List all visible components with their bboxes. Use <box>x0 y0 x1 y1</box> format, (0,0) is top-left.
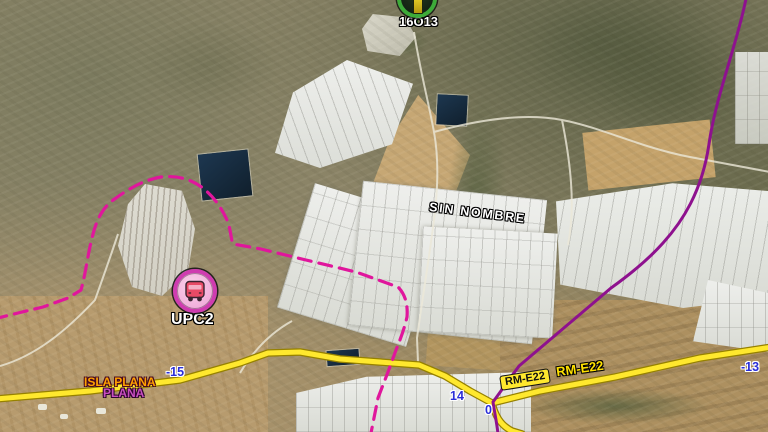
map-canvas[interactable]: 16O13 SIN NOMBRE UPC2 ISLA PLANA PLANA R… <box>0 0 768 432</box>
km-marker--13: -13 <box>741 361 759 374</box>
route-overlay <box>0 0 768 432</box>
stop-emblem-icon <box>413 0 423 14</box>
bus-stop-marker-upc2[interactable] <box>173 269 217 313</box>
bus-icon <box>182 278 208 304</box>
minor-roads <box>0 32 768 373</box>
stop-label-upc2: UPC2 <box>171 312 214 328</box>
km-marker-14: 14 <box>450 390 464 403</box>
km-marker-0: 0 <box>485 404 492 417</box>
route-line-solid <box>493 0 747 432</box>
place-label-isla-plana: ISLA PLANA <box>84 376 156 388</box>
km-marker--15: -15 <box>166 366 184 379</box>
